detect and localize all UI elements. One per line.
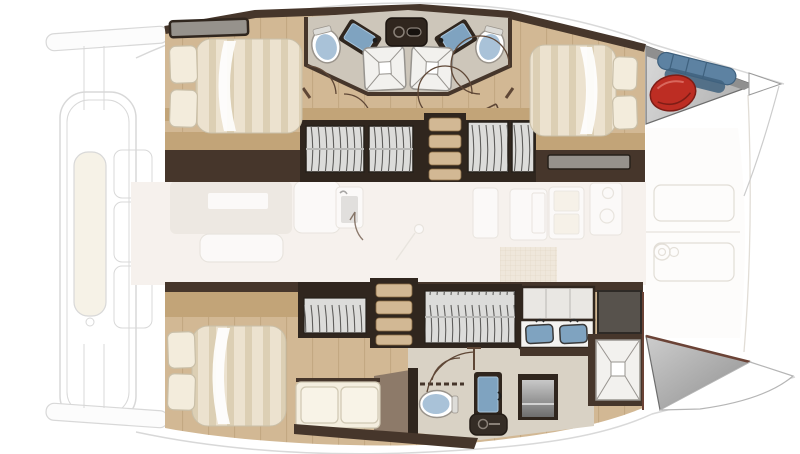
pillow xyxy=(169,46,197,84)
cabinet-2 xyxy=(510,189,547,240)
pillow xyxy=(169,90,197,128)
deck-beam-top xyxy=(46,26,169,51)
pillow xyxy=(612,57,637,91)
wardrobe-large xyxy=(418,284,522,350)
partition-wedge xyxy=(374,368,418,438)
locker-box xyxy=(470,414,507,435)
floorplan-svg xyxy=(0,0,800,454)
salon xyxy=(131,181,647,285)
cockpit-hull-edge xyxy=(744,95,750,352)
hatch-panel xyxy=(548,155,630,169)
bed-foot-shelf xyxy=(165,132,300,150)
catamaran-floorplan xyxy=(0,0,800,454)
cabinet-1 xyxy=(473,188,498,238)
deck-beam-bottom xyxy=(46,403,169,428)
bench-seat xyxy=(200,234,283,262)
washing-machine xyxy=(518,374,558,420)
pillow xyxy=(612,96,637,130)
double-sink-counter xyxy=(520,320,594,357)
sink-icon xyxy=(560,324,588,343)
cockpit-floor xyxy=(646,128,745,338)
table-inset xyxy=(208,193,268,209)
bench-cushion xyxy=(74,152,106,316)
aft-cockpit xyxy=(646,95,750,352)
shower-tray xyxy=(410,46,453,91)
galley-counter xyxy=(294,181,340,233)
shower-tray xyxy=(588,334,643,406)
sink-icon xyxy=(474,372,502,418)
bow-tip xyxy=(749,73,781,95)
hull-window-panel xyxy=(170,19,249,38)
shower-tray xyxy=(363,46,406,91)
galley-sink-basin xyxy=(341,196,358,223)
cabinet-dark-left xyxy=(165,150,300,182)
door-knob xyxy=(415,225,424,234)
pillow xyxy=(167,332,195,369)
vanity-hatch xyxy=(386,18,427,46)
staircase xyxy=(370,278,418,348)
shelf-strip xyxy=(165,292,300,317)
staircase xyxy=(424,113,466,182)
sofa-cushion xyxy=(301,387,338,423)
vanity-cabinet xyxy=(522,287,594,320)
pillow xyxy=(167,374,195,411)
aft-cabinet xyxy=(598,291,641,333)
wardrobe-small xyxy=(298,282,372,338)
sink-icon xyxy=(526,324,554,343)
sofa-cushion xyxy=(341,387,378,423)
